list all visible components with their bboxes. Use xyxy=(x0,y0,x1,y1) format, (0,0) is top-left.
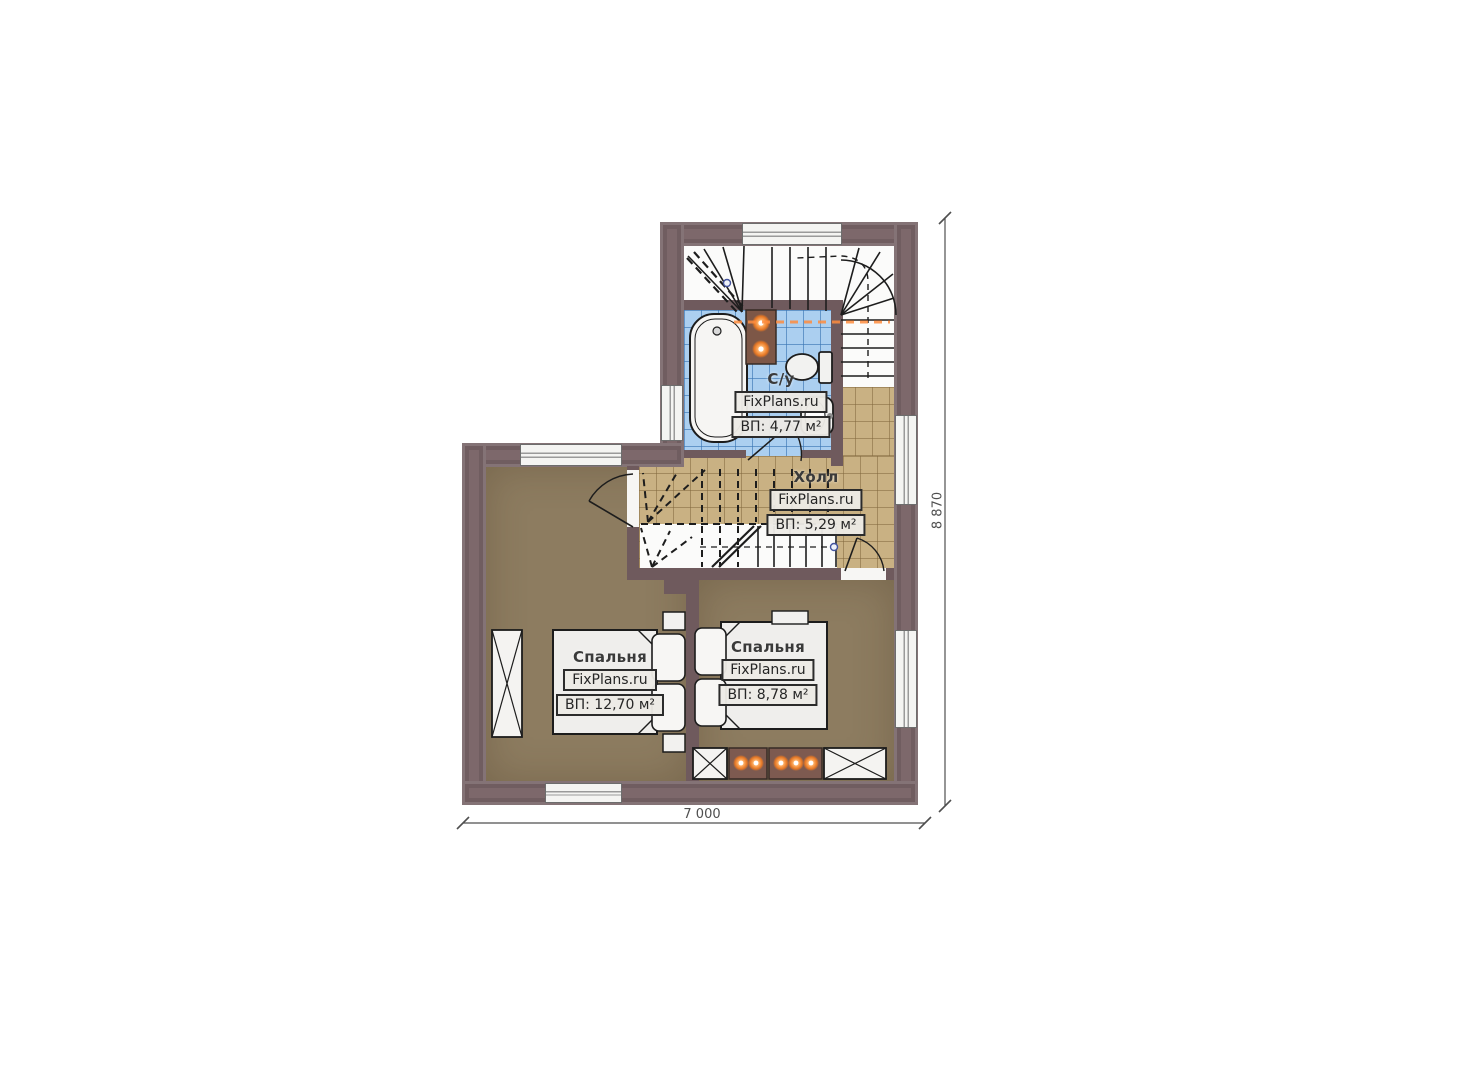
room-name: С/у xyxy=(731,370,830,388)
bedroom-partition xyxy=(686,580,699,781)
bathroom-bottom-partition-right xyxy=(802,450,831,458)
watermark-box: FixPlans.ru xyxy=(721,659,814,681)
window-top xyxy=(742,223,842,245)
room-name: Холл xyxy=(766,468,865,486)
dimension-height-label: 8 870 xyxy=(931,481,946,541)
bedroom-left-door-threshold xyxy=(627,470,639,527)
bathroom-bottom-partition-left xyxy=(684,450,746,458)
room-name: Спальня xyxy=(556,648,664,666)
dimension-width-label: 7 000 xyxy=(672,807,732,822)
window-upper-left xyxy=(661,385,683,441)
window-step-wall xyxy=(520,444,622,466)
exterior-wall-left xyxy=(462,443,486,805)
area-box: ВП: 4,77 м² xyxy=(731,416,830,438)
exterior-wall-bottom xyxy=(462,781,918,805)
room-name: Спальня xyxy=(718,638,817,656)
window-right-hall xyxy=(895,415,917,505)
hall-door-threshold xyxy=(841,568,886,580)
floor-plan: С/у FixPlans.ru ВП: 4,77 м² Холл FixPlan… xyxy=(0,0,1473,1080)
stair-right-flight-floor xyxy=(838,246,894,390)
area-box: ВП: 5,29 м² xyxy=(766,514,865,536)
bathroom-label: С/у FixPlans.ru ВП: 4,77 м² xyxy=(731,370,830,438)
area-box: ВП: 8,78 м² xyxy=(718,684,817,706)
bedroom-right-label: Спальня FixPlans.ru ВП: 8,78 м² xyxy=(718,638,817,706)
watermark-box: FixPlans.ru xyxy=(563,669,656,691)
bathroom-top-partition xyxy=(684,300,843,310)
bathroom-right-partition xyxy=(831,300,843,466)
watermark-box: FixPlans.ru xyxy=(734,391,827,413)
window-right-bedroom xyxy=(895,630,917,728)
hall-label: Холл FixPlans.ru ВП: 5,29 м² xyxy=(766,468,865,536)
area-box: ВП: 12,70 м² xyxy=(556,694,664,716)
window-bottom xyxy=(545,783,622,803)
hall-floor-upper xyxy=(838,387,894,466)
bedroom-left-label: Спальня FixPlans.ru ВП: 12,70 м² xyxy=(556,648,664,716)
partition-stub xyxy=(664,580,686,594)
watermark-box: FixPlans.ru xyxy=(769,489,862,511)
